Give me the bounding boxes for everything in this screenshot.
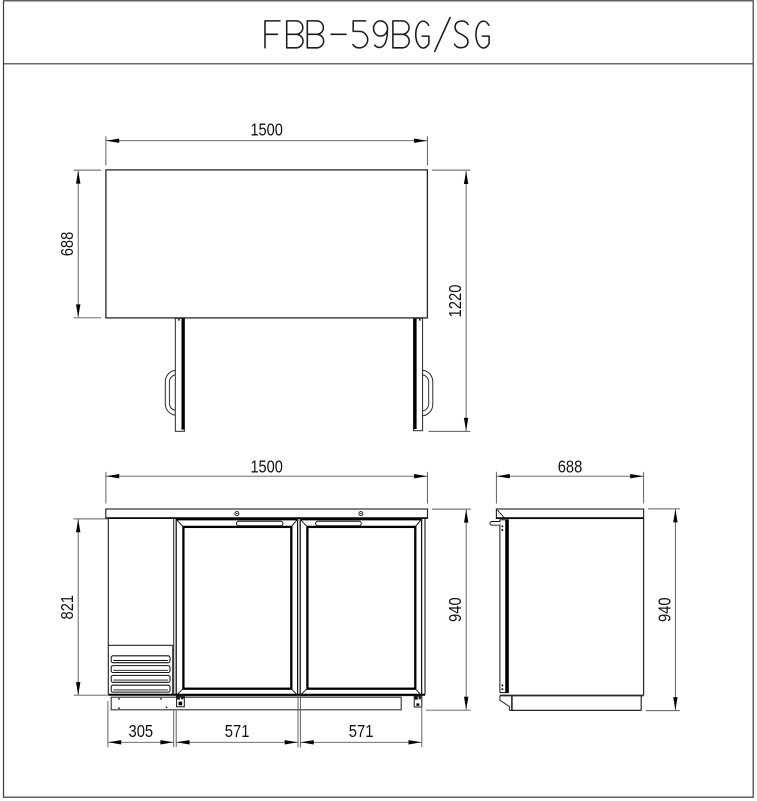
svg-text:571: 571 — [349, 721, 374, 741]
svg-text:940: 940 — [445, 597, 465, 622]
svg-text:571: 571 — [225, 721, 250, 741]
svg-text:1500: 1500 — [250, 457, 283, 477]
svg-text:688: 688 — [558, 456, 583, 476]
svg-text:1220: 1220 — [445, 284, 465, 317]
svg-text:940: 940 — [654, 597, 674, 622]
svg-text:305: 305 — [129, 721, 154, 741]
svg-text:821: 821 — [57, 595, 77, 620]
svg-text:688: 688 — [57, 232, 77, 257]
svg-text:1500: 1500 — [250, 119, 283, 139]
